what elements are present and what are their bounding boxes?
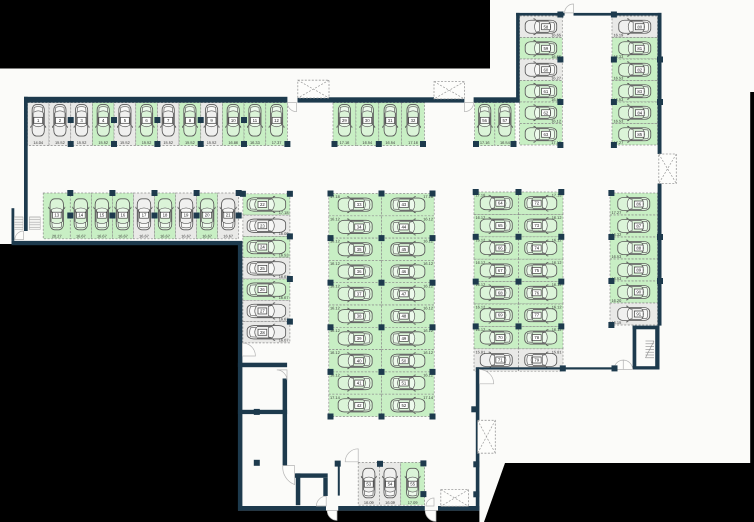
svg-text:32: 32: [411, 118, 416, 123]
svg-text:16.54: 16.54: [362, 140, 373, 145]
svg-text:17.16: 17.16: [408, 140, 418, 145]
svg-text:40: 40: [357, 358, 362, 363]
svg-text:16.12: 16.12: [551, 118, 561, 123]
svg-text:38: 38: [357, 314, 362, 319]
svg-text:60: 60: [544, 67, 549, 72]
svg-text:85: 85: [637, 132, 642, 137]
svg-text:44: 44: [401, 224, 406, 229]
svg-text:16.67: 16.67: [139, 234, 149, 239]
svg-text:47: 47: [401, 291, 406, 296]
svg-text:17.18: 17.18: [279, 210, 289, 215]
svg-text:65: 65: [498, 223, 503, 228]
svg-text:63: 63: [544, 132, 549, 137]
svg-text:76: 76: [534, 290, 539, 295]
svg-text:57: 57: [503, 118, 508, 123]
svg-text:16.19: 16.19: [614, 32, 624, 37]
svg-text:16.54: 16.54: [500, 140, 511, 145]
svg-text:16.67: 16.67: [181, 234, 191, 239]
svg-text:16.12: 16.12: [476, 305, 486, 310]
svg-text:16: 16: [121, 213, 126, 218]
svg-text:45: 45: [401, 247, 406, 252]
svg-text:25: 25: [260, 266, 265, 271]
svg-text:20: 20: [205, 213, 210, 218]
svg-text:89: 89: [636, 268, 641, 273]
svg-text:16.09: 16.09: [385, 500, 395, 505]
svg-text:30: 30: [365, 118, 370, 123]
svg-text:41: 41: [357, 381, 362, 386]
svg-text:17.16: 17.16: [480, 140, 490, 145]
svg-text:15.52: 15.52: [185, 140, 195, 145]
svg-text:52: 52: [401, 403, 406, 408]
svg-text:29: 29: [342, 118, 347, 123]
svg-text:17.09: 17.09: [408, 500, 418, 505]
svg-text:22: 22: [260, 202, 265, 207]
svg-text:16.12: 16.12: [552, 305, 562, 310]
svg-text:66: 66: [498, 246, 503, 251]
svg-text:82: 82: [637, 67, 642, 72]
svg-text:16.67: 16.67: [160, 234, 170, 239]
svg-text:16.12: 16.12: [476, 260, 486, 265]
svg-text:69: 69: [498, 313, 503, 318]
svg-text:16.67: 16.67: [76, 234, 86, 239]
svg-text:14.04: 14.04: [33, 140, 44, 145]
svg-text:26: 26: [260, 287, 265, 292]
svg-text:15.52: 15.52: [55, 140, 65, 145]
svg-text:61: 61: [544, 89, 549, 94]
svg-text:16.12: 16.12: [552, 260, 562, 265]
svg-text:16.53: 16.53: [614, 118, 624, 123]
svg-text:79: 79: [534, 358, 539, 363]
svg-text:48: 48: [401, 314, 406, 319]
svg-text:11: 11: [253, 118, 258, 123]
svg-text:20.27: 20.27: [52, 234, 62, 239]
svg-text:64: 64: [498, 201, 503, 206]
svg-text:21: 21: [226, 213, 231, 218]
svg-text:72: 72: [534, 201, 539, 206]
svg-text:16.86: 16.86: [228, 140, 238, 145]
svg-text:16.12: 16.12: [423, 216, 433, 221]
svg-text:15.52: 15.52: [142, 140, 152, 145]
svg-text:16.53: 16.53: [614, 75, 624, 80]
svg-text:17.14: 17.14: [330, 395, 341, 400]
svg-text:39: 39: [357, 336, 362, 341]
svg-text:16.12: 16.12: [330, 350, 340, 355]
svg-text:15.52: 15.52: [77, 140, 87, 145]
svg-text:16.27: 16.27: [551, 75, 561, 80]
svg-text:37: 37: [357, 291, 362, 296]
svg-text:67: 67: [498, 268, 503, 273]
svg-text:86: 86: [636, 202, 641, 207]
svg-text:27: 27: [260, 308, 265, 313]
svg-text:24: 24: [260, 245, 265, 250]
svg-text:54: 54: [388, 482, 393, 487]
svg-text:16.65: 16.65: [551, 32, 561, 37]
svg-text:31: 31: [388, 118, 393, 123]
svg-text:16.12: 16.12: [423, 261, 433, 266]
svg-text:75: 75: [534, 268, 539, 273]
svg-text:36: 36: [357, 269, 362, 274]
svg-text:88: 88: [636, 246, 641, 251]
svg-text:51: 51: [401, 381, 406, 386]
svg-text:16.12: 16.12: [330, 261, 340, 266]
svg-text:43: 43: [401, 202, 406, 207]
svg-text:62: 62: [544, 110, 549, 115]
svg-text:15.52: 15.52: [207, 140, 217, 145]
svg-text:42: 42: [357, 403, 362, 408]
svg-text:16.53: 16.53: [279, 253, 289, 258]
svg-text:68: 68: [498, 290, 503, 295]
svg-text:83: 83: [637, 89, 642, 94]
svg-text:15: 15: [99, 213, 104, 218]
svg-text:74: 74: [534, 246, 539, 251]
svg-text:16.67: 16.67: [97, 234, 107, 239]
svg-text:17: 17: [142, 213, 147, 218]
svg-text:16.07: 16.07: [279, 338, 289, 343]
svg-text:90: 90: [636, 290, 641, 295]
svg-text:91: 91: [636, 312, 641, 317]
svg-text:81: 81: [637, 46, 642, 51]
svg-text:13: 13: [54, 213, 59, 218]
svg-text:53: 53: [366, 482, 371, 487]
svg-text:73: 73: [534, 223, 539, 228]
svg-text:16.53: 16.53: [612, 254, 622, 259]
svg-text:17.14: 17.14: [423, 395, 434, 400]
svg-text:16.12: 16.12: [423, 350, 433, 355]
svg-text:19: 19: [184, 213, 189, 218]
svg-text:15.52: 15.52: [98, 140, 108, 145]
svg-text:59: 59: [544, 46, 549, 51]
svg-text:33: 33: [357, 202, 362, 207]
svg-text:23: 23: [260, 223, 265, 228]
svg-text:16.67: 16.67: [118, 234, 128, 239]
svg-text:56: 56: [482, 118, 487, 123]
svg-text:10: 10: [231, 118, 236, 123]
svg-text:16.12: 16.12: [552, 215, 562, 220]
svg-text:15.52: 15.52: [120, 140, 130, 145]
svg-text:28: 28: [260, 330, 265, 335]
svg-text:15.81: 15.81: [552, 349, 562, 354]
svg-text:71: 71: [498, 358, 503, 363]
svg-text:16.12: 16.12: [423, 306, 433, 311]
svg-text:50: 50: [401, 358, 406, 363]
svg-text:16.67: 16.67: [223, 234, 233, 239]
svg-text:16.09: 16.09: [364, 500, 374, 505]
svg-text:17.16: 17.16: [340, 140, 350, 145]
svg-text:77: 77: [534, 313, 539, 318]
svg-text:16.67: 16.67: [202, 234, 212, 239]
svg-text:15.81: 15.81: [476, 349, 486, 354]
svg-text:16.67: 16.67: [279, 295, 289, 300]
svg-text:16.12: 16.12: [330, 216, 340, 221]
svg-text:55: 55: [410, 482, 415, 487]
svg-text:18: 18: [163, 213, 168, 218]
svg-text:15.52: 15.52: [163, 140, 173, 145]
svg-text:34: 34: [357, 224, 362, 229]
svg-text:70: 70: [498, 335, 503, 340]
svg-text:16.33: 16.33: [250, 140, 260, 145]
svg-text:16.12: 16.12: [330, 306, 340, 311]
svg-text:17.27: 17.27: [612, 210, 622, 215]
svg-text:16.12: 16.12: [476, 215, 486, 220]
svg-text:58: 58: [544, 24, 549, 29]
svg-text:84: 84: [637, 110, 642, 115]
svg-text:12: 12: [274, 118, 279, 123]
svg-text:14: 14: [78, 213, 83, 218]
svg-text:17.37: 17.37: [272, 140, 282, 145]
svg-text:46: 46: [401, 269, 406, 274]
svg-text:16.54: 16.54: [385, 140, 396, 145]
svg-text:49: 49: [401, 336, 406, 341]
svg-text:80: 80: [637, 24, 642, 29]
svg-text:78: 78: [534, 335, 539, 340]
svg-text:16.20: 16.20: [612, 298, 623, 303]
svg-text:87: 87: [636, 224, 641, 229]
svg-text:35: 35: [357, 247, 362, 252]
